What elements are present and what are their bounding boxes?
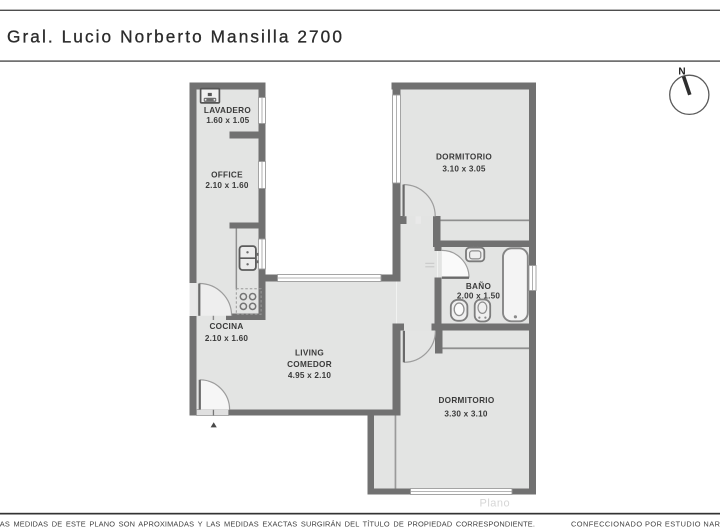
svg-text:LAVADERO: LAVADERO	[204, 106, 251, 115]
svg-text:2.00 x 1.50: 2.00 x 1.50	[457, 292, 500, 301]
svg-text:2.10 x 1.60: 2.10 x 1.60	[205, 181, 248, 190]
svg-text:3.30 x 3.10: 3.30 x 3.10	[444, 409, 487, 418]
svg-text:LAS MEDIDAS DE ESTE PLANO SON: LAS MEDIDAS DE ESTE PLANO SON APROXIMADA…	[0, 520, 535, 529]
svg-text:BAÑO: BAÑO	[466, 281, 492, 291]
svg-text:DORMITORIO: DORMITORIO	[436, 152, 492, 161]
svg-text:Plano: Plano	[480, 498, 511, 510]
svg-text:Gral. Lucio Norberto Mansilla: Gral. Lucio Norberto Mansilla 2700	[7, 26, 344, 46]
svg-text:4.95 x 2.10: 4.95 x 2.10	[288, 371, 331, 380]
svg-text:CONFECCIONADO POR ESTUDIO NART: CONFECCIONADO POR ESTUDIO NARTE	[571, 520, 720, 529]
svg-text:COMEDOR: COMEDOR	[287, 360, 332, 369]
svg-text:COCINA: COCINA	[209, 322, 243, 331]
svg-text:2.10 x 1.60: 2.10 x 1.60	[205, 334, 248, 343]
svg-text:N: N	[678, 67, 685, 78]
svg-text:3.10 x 3.05: 3.10 x 3.05	[442, 164, 485, 173]
svg-text:LIVING: LIVING	[295, 348, 324, 357]
svg-text:1.60 x 1.05: 1.60 x 1.05	[206, 116, 249, 125]
svg-text:OFFICE: OFFICE	[211, 170, 243, 179]
svg-text:DORMITORIO: DORMITORIO	[438, 396, 494, 405]
